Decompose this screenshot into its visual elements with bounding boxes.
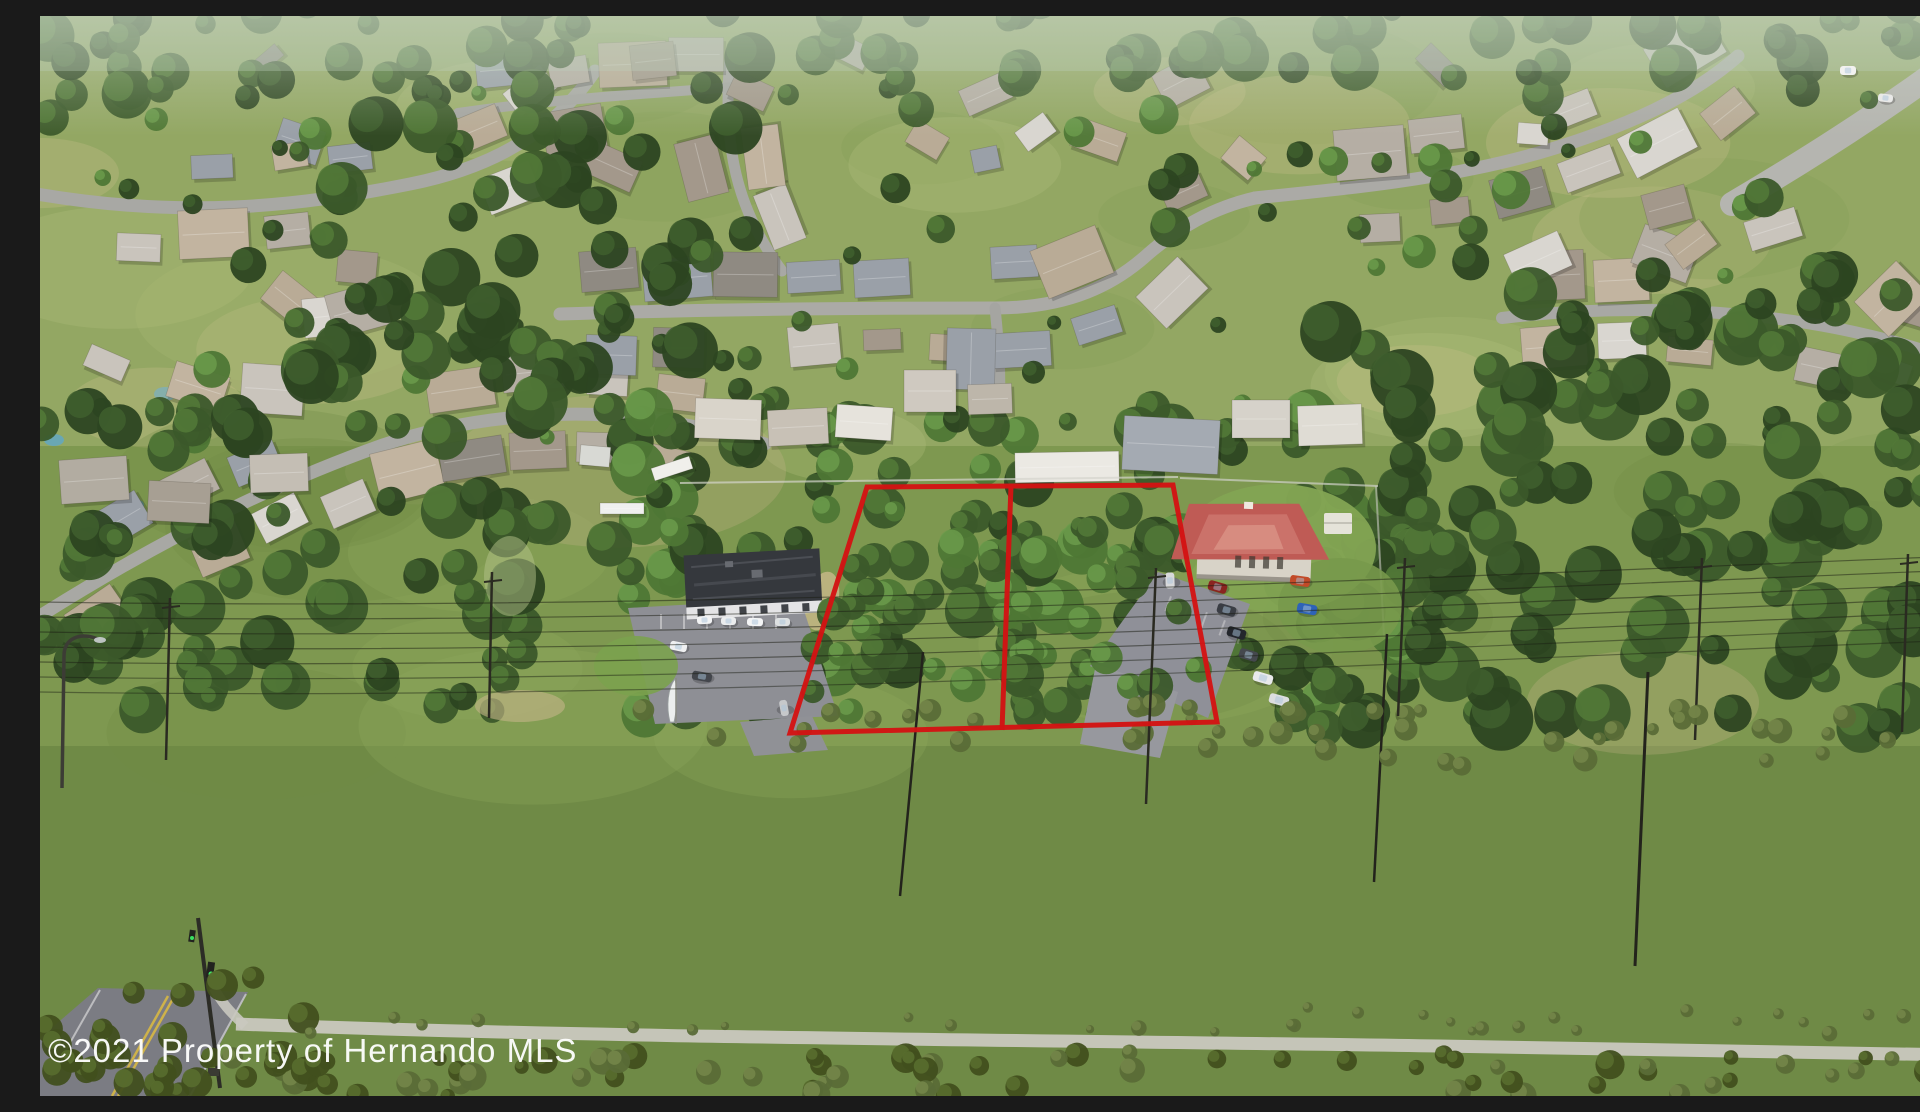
scene-canvas: ©2021 Property of Hernando MLS [40,16,1920,1096]
atmospheric-haze-layer [40,16,1920,136]
mls-watermark-text: ©2021 Property of Hernando MLS [48,1032,577,1069]
aerial-photo: ©2021 Property of Hernando MLS [40,16,1920,1096]
